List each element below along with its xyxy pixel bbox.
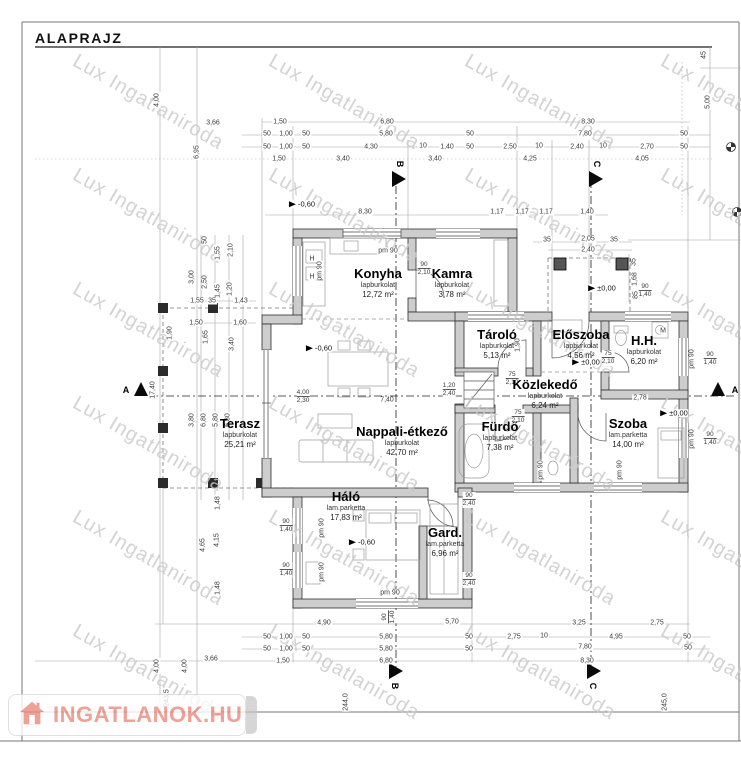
- logo-tab: [246, 696, 257, 734]
- logo-text: INGATLANOK.HU: [53, 702, 242, 728]
- floor-plan-drawing: [0, 0, 741, 768]
- house-icon: [18, 699, 46, 732]
- ingatlanok-logo[interactable]: INGATLANOK.HU: [8, 694, 246, 736]
- floor-plan-sheet: Lux IngatlanirodaLux IngatlanirodaLux In…: [0, 0, 741, 768]
